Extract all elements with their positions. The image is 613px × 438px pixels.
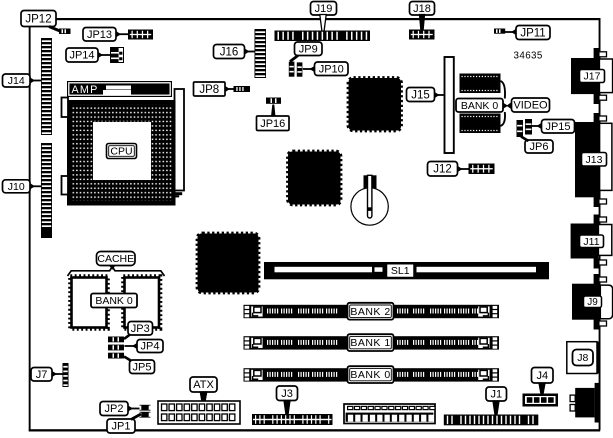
svg-text:BANK 1: BANK 1 xyxy=(350,337,390,349)
svg-text:BANK 0: BANK 0 xyxy=(95,295,133,307)
svg-text:J7: J7 xyxy=(36,369,48,381)
svg-text:SL1: SL1 xyxy=(391,265,410,277)
svg-text:JP15: JP15 xyxy=(545,121,570,133)
svg-text:JP5: JP5 xyxy=(133,361,152,373)
svg-text:J9: J9 xyxy=(587,297,598,308)
svg-text:JP4: JP4 xyxy=(141,341,160,353)
svg-text:J15: J15 xyxy=(411,89,430,101)
svg-text:J12: J12 xyxy=(433,164,452,176)
svg-text:JP8: JP8 xyxy=(199,84,219,96)
svg-text:JP10: JP10 xyxy=(319,63,344,75)
svg-text:J17: J17 xyxy=(584,71,601,83)
svg-text:J4: J4 xyxy=(536,370,548,382)
svg-text:34635: 34635 xyxy=(514,50,543,61)
svg-text:J18: J18 xyxy=(413,3,431,15)
svg-text:J16: J16 xyxy=(220,46,239,58)
svg-text:BANK 0: BANK 0 xyxy=(461,100,499,112)
svg-text:J8: J8 xyxy=(577,352,588,364)
svg-text:J1: J1 xyxy=(490,389,502,401)
svg-text:ATX: ATX xyxy=(193,379,214,391)
svg-text:JP2: JP2 xyxy=(105,403,124,415)
svg-text:VIDEO: VIDEO xyxy=(513,100,548,112)
svg-text:BANK 0: BANK 0 xyxy=(350,369,390,381)
svg-text:JP14: JP14 xyxy=(69,50,94,62)
svg-text:JP1: JP1 xyxy=(112,421,131,433)
svg-text:J14: J14 xyxy=(8,75,25,87)
svg-text:J13: J13 xyxy=(586,154,603,166)
svg-text:AMP: AMP xyxy=(72,84,99,96)
svg-text:JP12: JP12 xyxy=(25,13,51,25)
svg-text:J11: J11 xyxy=(583,236,599,248)
svg-text:JP11: JP11 xyxy=(520,27,545,39)
svg-text:JP6: JP6 xyxy=(530,141,549,153)
svg-text:CPU: CPU xyxy=(110,146,132,158)
svg-text:J3: J3 xyxy=(281,388,293,400)
svg-text:JP3: JP3 xyxy=(131,323,150,335)
svg-text:JP9: JP9 xyxy=(299,43,318,55)
svg-text:CACHE: CACHE xyxy=(97,253,134,265)
svg-text:JP13: JP13 xyxy=(87,29,112,41)
svg-text:JP16: JP16 xyxy=(260,118,285,130)
svg-text:BANK 2: BANK 2 xyxy=(350,306,390,318)
svg-text:J10: J10 xyxy=(8,181,25,193)
svg-text:J19: J19 xyxy=(315,3,333,15)
